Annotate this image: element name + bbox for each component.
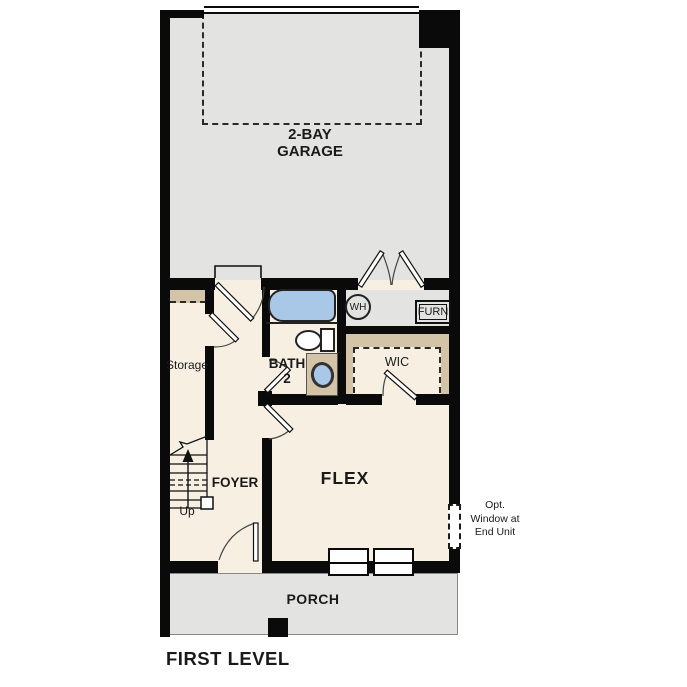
- storage-door: [209, 313, 238, 347]
- plan-title: FIRST LEVEL: [166, 648, 386, 670]
- porch-label: PORCH: [270, 591, 356, 607]
- flex-door: [264, 404, 293, 439]
- garage-hall-door-jamb: [215, 266, 261, 278]
- garage-label: 2-BAY GARAGE: [240, 126, 380, 160]
- doors-and-stairs-overlay: [0, 0, 687, 687]
- wic-label: WIC: [374, 355, 420, 369]
- bath2-label-line1: BATH: [264, 356, 310, 371]
- optional-window-note-line1: Opt.: [458, 499, 532, 513]
- stair-up-arrow: [183, 449, 194, 508]
- optional-window-note-line2: Window at: [458, 513, 532, 527]
- optional-window-note: Opt. Window at End Unit: [458, 499, 532, 540]
- flex-label: FLEX: [300, 468, 390, 489]
- foyer-label: FOYER: [208, 475, 262, 490]
- stair-newel-post: [201, 497, 213, 509]
- optional-window-note-line3: End Unit: [458, 526, 532, 540]
- front-door: [219, 523, 258, 561]
- bath2-label-line2: 2: [264, 371, 310, 386]
- floorplan-first-level: WH FURN: [0, 0, 687, 687]
- garage-label-line1: 2-BAY: [240, 126, 380, 143]
- bath2-label: BATH 2: [264, 356, 310, 386]
- garage-label-line2: GARAGE: [240, 143, 380, 160]
- storage-label: Storage: [163, 358, 211, 372]
- wic-door: [383, 370, 417, 400]
- garage-hall-door: [215, 283, 264, 322]
- utility-double-doors: [358, 251, 425, 287]
- stair-up-label: Up: [172, 504, 202, 518]
